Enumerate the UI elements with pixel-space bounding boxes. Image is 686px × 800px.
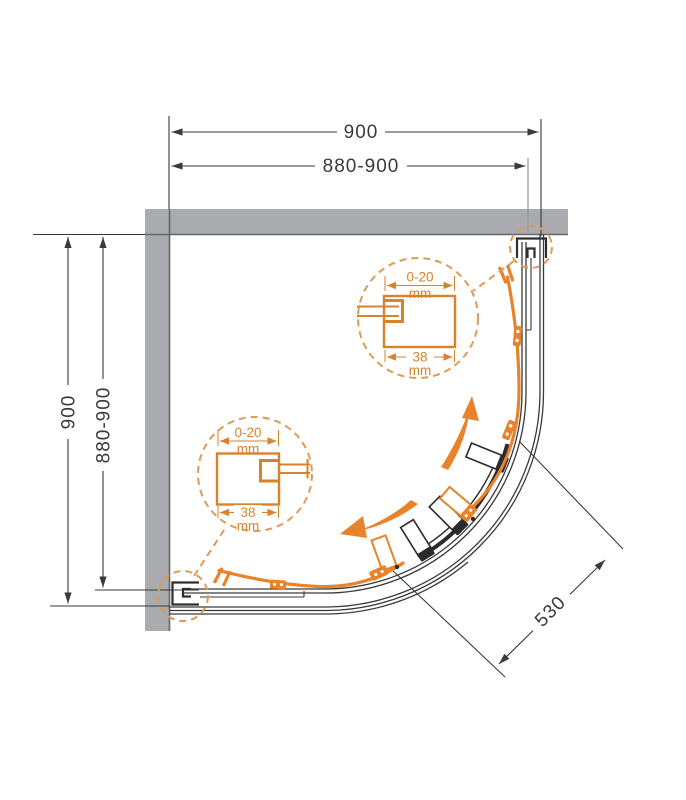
door-end-bracket — [371, 535, 396, 570]
shower-enclosure-technical-drawing: 900 880-900 900 880-900 530 — [0, 0, 686, 800]
dimension-top-adjustable: 880-900 — [172, 156, 526, 177]
dim-top-adjustable-label: 880-900 — [323, 156, 400, 177]
dim-top-overall-label: 900 — [344, 122, 379, 143]
handle-knob — [213, 580, 217, 584]
upper-sliding-door — [440, 265, 522, 523]
wall-inner-edges — [145, 209, 568, 631]
detail-top-width-unit: mm — [409, 363, 432, 378]
detail-top-adjust-label: 0-20 — [406, 270, 433, 285]
detail-bottom-width-unit: mm — [237, 519, 260, 534]
detail-top-adjust-unit: mm — [409, 286, 432, 301]
track-line-outer-2 — [170, 235, 544, 611]
detail-bottom-adjust-unit: mm — [237, 442, 260, 457]
extension-lines — [33, 116, 541, 606]
dim-left-adjustable-label: 880-900 — [94, 387, 115, 464]
dimension-left-overall: 900 — [59, 237, 80, 604]
profile-notch — [384, 301, 403, 322]
glass-edge — [357, 307, 399, 317]
top-wall — [145, 209, 568, 235]
detail-circle-bottom: 0-20 mm 38 mm — [198, 417, 312, 534]
handle-knob — [222, 583, 226, 587]
door-roller-wheel — [471, 517, 475, 521]
door-roller — [270, 580, 286, 590]
dimension-radius: 530 — [499, 560, 605, 664]
profile-notch — [261, 461, 280, 482]
dim-left-overall-label: 900 — [59, 395, 80, 430]
detail-circle-top: 0-20 mm 38 mm — [357, 258, 478, 378]
door-roller-wheel — [395, 565, 399, 569]
left-wall — [145, 209, 170, 631]
glass-edge — [279, 459, 310, 479]
fixed-panels-and-track — [170, 235, 544, 615]
drawing-canvas: 900 880-900 900 880-900 530 — [0, 0, 686, 800]
track-line-outer — [170, 235, 541, 608]
detail-bottom-adjust-label: 0-20 — [234, 425, 261, 440]
dimension-left-adjustable: 880-900 — [94, 237, 115, 588]
lower-sliding-door — [213, 535, 403, 589]
dimension-top-overall: 900 — [172, 122, 539, 143]
